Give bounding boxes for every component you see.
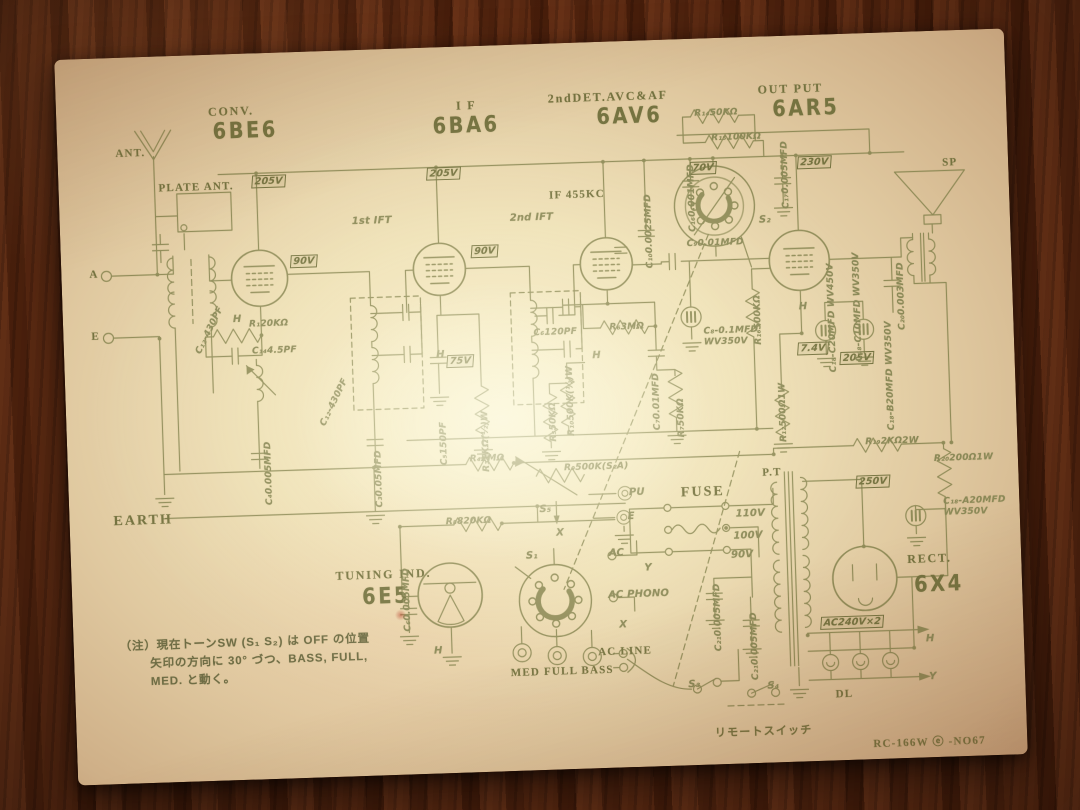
plate-antenna-label: PLATE ANT. (158, 180, 234, 194)
schematic-label: R₆3MΩ (609, 322, 644, 334)
voltage-box: 75V (446, 354, 474, 368)
power-transformer-label: P.T (762, 466, 782, 479)
schematic-label: R₇50KΩ (676, 398, 688, 438)
schematic-label: C₂₀0.003MFD (895, 262, 908, 330)
schematic-label: C₉0.01MFD (687, 237, 744, 249)
tube-name-6ba6: 6BA6 (432, 111, 500, 139)
schematic-label: AC (609, 547, 625, 558)
pickup-jack-label: PU (629, 487, 645, 499)
tube-name-6be6: 6BE6 (212, 117, 278, 145)
schematic-label: E (628, 511, 635, 522)
schematic-label: R₁₂500Ω1W (777, 383, 790, 443)
schematic-paper: CONV.6BE6I F6BA62ndDET.AVC&AF6AV6OUT PUT… (54, 28, 1028, 785)
schematic-label: Y (644, 562, 652, 573)
line-tap-90v: 90V (731, 549, 754, 561)
schematic-label: C₄0.005MFD (263, 441, 276, 505)
line-tap-110v: 110V (735, 508, 765, 520)
tube-name-6av6: 6AV6 (596, 102, 663, 130)
schematic-label: R₁₄50KΩ (694, 107, 738, 119)
remote-switch-label: リモートスイッチ (715, 721, 813, 740)
tube-name-6ar5: 6AR5 (772, 94, 840, 122)
note-line: MED. と動く。 (151, 670, 237, 689)
tube-function-tuning: TUNING IND. (335, 566, 431, 584)
schematic-label: AC PHONO (608, 588, 669, 601)
schematic-label: H (434, 645, 443, 656)
schematic-label: C₁₈-C10MFD WV350V (851, 252, 865, 361)
model-code: RC-166W ⓔ -NO67 (873, 731, 986, 751)
schematic-label: C₂₁0.005MFD (749, 612, 762, 680)
line-tap-100v: 100V (733, 530, 763, 542)
if-frequency-label: IF 455KC (549, 188, 605, 202)
voltage-box: 90V (471, 244, 499, 258)
schematic-label: Y (929, 671, 937, 682)
schematic-label: R₁₀500K(½)W (565, 366, 578, 437)
label-layer: CONV.6BE6I F6BA62ndDET.AVC&AF6AV6OUT PUT… (54, 28, 1028, 785)
schematic-label: H (926, 633, 935, 644)
earth-label: EARTH (113, 512, 173, 530)
schematic-label: E (91, 331, 100, 343)
schematic-label: C₅150PF (438, 422, 450, 466)
schematic-label: X (556, 527, 564, 538)
schematic-label: C₁₂-430PF (194, 305, 226, 356)
schematic-label: C₁₇0.005MFD (779, 141, 792, 209)
schematic-label: A (89, 269, 99, 281)
schematic-label: C₈-0.1MFD WV350V (703, 325, 758, 348)
schematic-label: C₆0.005MFD (401, 568, 414, 632)
switch-s3-label: S₃ (688, 679, 700, 690)
antenna-label: ANT. (115, 147, 145, 160)
voltage-box: AC240V×2 (820, 615, 884, 630)
ac-line-label: AC LINE (598, 644, 652, 658)
schematic-label: R₁₉2KΩ2W (865, 435, 919, 447)
schematic-label: C₁₈-B20MFD WV350V (883, 321, 897, 431)
voltage-box: 90V (290, 254, 318, 268)
fuse-label: FUSE (681, 484, 725, 501)
voltage-box: 205V (251, 174, 286, 188)
schematic-label: R₁20KΩ (249, 318, 289, 330)
schematic-label: C₇0.01MFD (651, 373, 663, 430)
schematic-label: C₁₈-A20MFD WV350V (943, 495, 1006, 518)
schematic-label: H (592, 350, 601, 361)
schematic-label: C₁₀0.0025MFD (643, 194, 656, 269)
schematic-label: H (799, 301, 808, 312)
tube-function-rect: RECT. (907, 550, 952, 566)
switch-s4-label: S₄ (767, 680, 779, 691)
dial-lamp-label: DL (835, 688, 853, 701)
schematic-label: R₂₀200Ω1W (934, 452, 994, 465)
schematic-label: R₅50KΩ (548, 402, 560, 442)
schematic-label: C₁₆0.001MFD (686, 164, 699, 232)
speaker-label: SP (942, 156, 958, 168)
schematic-label: 1st IFT (352, 215, 392, 227)
switch-s5-label: S₅ (539, 504, 551, 515)
schematic-label: C₃0.05MFD (373, 450, 385, 507)
schematic-label: H (233, 314, 242, 325)
voltage-box: 7.4V (797, 341, 829, 355)
voltage-box: 250V (856, 474, 891, 488)
schematic-label: R₈820KΩ (446, 516, 492, 528)
schematic-label: C₁₂-430PF (318, 377, 350, 428)
schematic-label: C₁₄4.5PF (252, 345, 297, 357)
schematic-label: R₉500K(S₂A) (564, 461, 629, 474)
schematic-label: R₁₆500KΩ (752, 295, 764, 345)
voltage-box: 230V (797, 155, 832, 169)
schematic-label: X (619, 619, 627, 630)
schematic-label: R₄2MΩ (470, 453, 505, 465)
schematic-label: C₁₈-C20MFD WV450V (825, 263, 839, 372)
schematic-label: R₁₅100KΩ (711, 132, 761, 144)
switch-s1-label: S₁ (526, 550, 538, 561)
tone-jack-labels: MED FULL BASS (511, 664, 614, 679)
schematic-label: C₂₁0.005MFD (712, 583, 725, 651)
schematic-label: C₆120PF (533, 327, 577, 339)
schematic-label: H (436, 349, 445, 360)
schematic-label: 2nd IFT (510, 211, 554, 223)
voltage-box: 205V (426, 167, 461, 181)
switch-s2-label: S₂ (759, 214, 771, 225)
tube-name-6x4: 6X4 (914, 570, 964, 598)
